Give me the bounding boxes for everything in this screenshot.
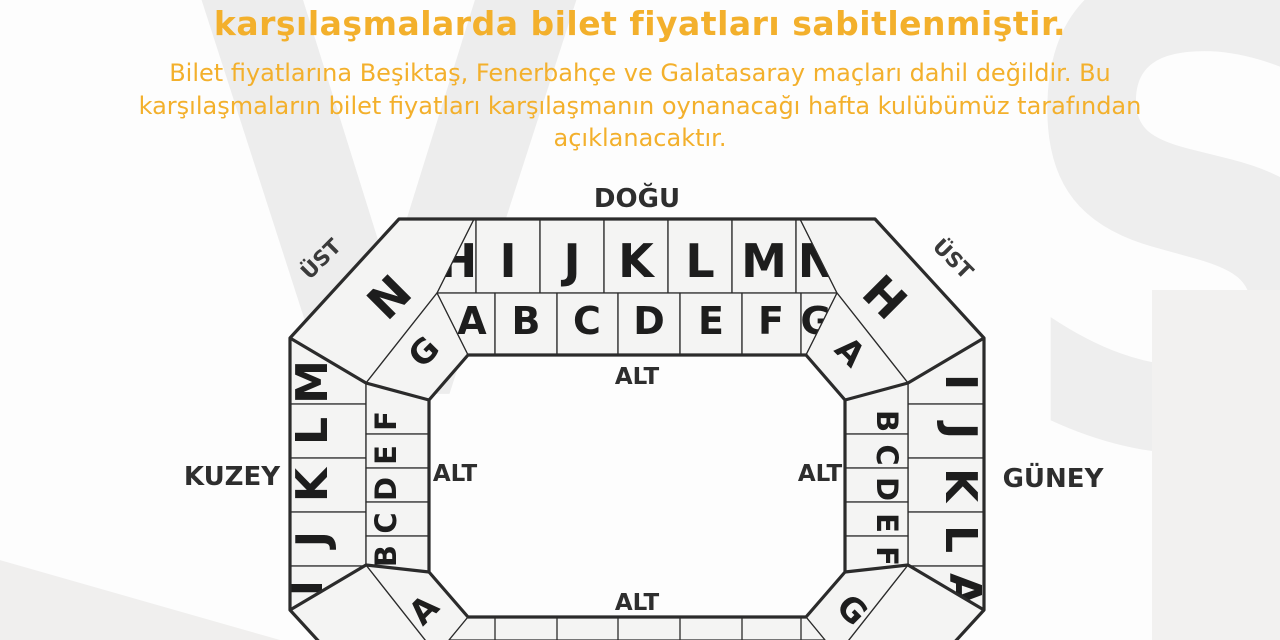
header-paragraph: Bilet fiyatlarına Beşiktaş, Fenerbahçe v… — [100, 57, 1180, 155]
section-label: E — [369, 445, 403, 465]
section-label: B — [870, 410, 904, 432]
tier-label-ust-right: ÜST — [928, 233, 979, 284]
south-upper-column: I J K L A — [908, 338, 990, 610]
south-lower-column: B C D E F — [845, 383, 908, 572]
tier-label-ust-left: ÜST — [295, 233, 346, 284]
section-label: B — [512, 299, 541, 343]
infographic-canvas: V S karşılaşmalarda bilet fiyatları sabi… — [0, 0, 1280, 640]
section-label: M — [741, 234, 787, 288]
section-label: K — [287, 466, 338, 502]
side-label-south: GÜNEY — [1003, 461, 1105, 494]
section-label: K — [935, 468, 986, 504]
section-label: C — [573, 299, 601, 343]
section-label: D — [633, 299, 665, 343]
tier-label-alt-east: ALT — [615, 364, 660, 390]
section-label: E — [698, 299, 724, 343]
section-label: E — [870, 513, 904, 533]
east-lower-row: A B C D E F G — [437, 293, 837, 355]
section-label: D — [369, 477, 403, 501]
west-lower-row — [449, 617, 825, 640]
section-shape — [449, 617, 825, 640]
section-label: I — [935, 374, 986, 390]
section-label: J — [560, 234, 580, 288]
section-label: D — [870, 477, 904, 501]
side-label-east: DOĞU — [594, 182, 680, 214]
section-label: K — [618, 234, 656, 288]
section-label: M — [287, 360, 338, 404]
tier-label-alt-north: ALT — [433, 461, 478, 487]
section-label: L — [685, 234, 714, 288]
section-label: L — [935, 525, 986, 553]
section-label: F — [758, 299, 784, 343]
section-label: B — [369, 545, 403, 567]
pitch-bowl-outline — [429, 355, 845, 617]
section-label: F — [369, 411, 403, 431]
north-lower-column: F E D C B — [366, 383, 429, 572]
north-upper-column: M L K J I — [282, 338, 366, 610]
section-label: J — [287, 531, 338, 550]
section-label: F — [870, 546, 904, 566]
section-label: I — [499, 234, 516, 288]
header: karşılaşmalarda bilet fiyatları sabitlen… — [0, 0, 1280, 155]
tier-label-alt-south: ALT — [798, 461, 843, 487]
section-label: J — [935, 420, 986, 439]
tier-label-alt-west: ALT — [615, 590, 660, 616]
headline: karşılaşmalarda bilet fiyatları sabitlen… — [0, 4, 1280, 43]
section-label: L — [287, 417, 338, 445]
east-upper-row: H I J K L M N — [437, 219, 837, 293]
section-label: C — [369, 512, 403, 533]
side-label-north: KUZEY — [184, 462, 281, 492]
section-label: C — [870, 444, 904, 465]
section-label: A — [457, 299, 487, 343]
